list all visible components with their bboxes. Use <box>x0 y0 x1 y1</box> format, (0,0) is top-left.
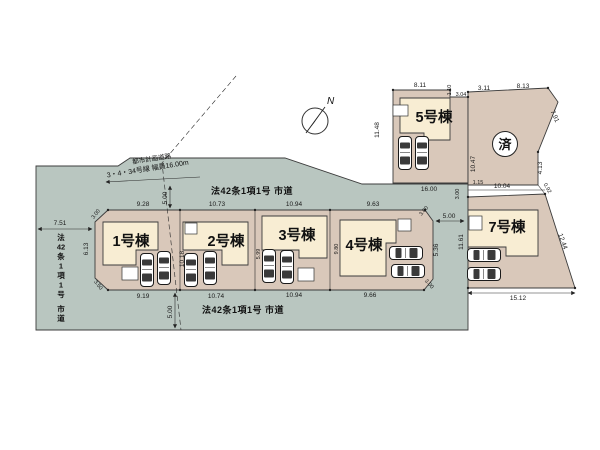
car-icon <box>185 254 198 287</box>
dimension-label: 3.04 <box>456 92 467 98</box>
dimension-label: 11.61 <box>458 234 465 250</box>
boundary-dot <box>547 87 549 89</box>
car-icon <box>263 250 276 283</box>
dimension-label: 15.12 <box>510 295 527 302</box>
boundary-dot <box>107 289 109 291</box>
site-plan-svg: N 法42条1項1号 市道 法42条1項1号 市道 法42条1項1号市道 都市計… <box>0 0 600 450</box>
dimension-label: 10.74 <box>208 293 225 300</box>
boundary-dot <box>179 289 181 291</box>
dimension-label: 10.94 <box>286 292 303 299</box>
bottom-road-label: 法42条1項1号 市道 <box>202 304 284 315</box>
dimension-label: 1.15 <box>473 180 484 186</box>
dimension-label: 11.48 <box>374 122 381 138</box>
dimension-label: 9.63 <box>367 201 380 208</box>
dimension-label: 10.73 <box>209 201 226 208</box>
dimension-label: 4.13 <box>537 161 544 174</box>
dimension-label: 16.00 <box>421 186 438 193</box>
dimension-label: 9.19 <box>137 293 150 300</box>
car-icon <box>468 249 501 262</box>
car-icon <box>392 265 425 278</box>
car-icon <box>468 268 501 281</box>
compass-north-label: N <box>327 96 335 107</box>
entrance-rect <box>393 105 408 116</box>
dimension-label: 5.00 <box>443 213 456 220</box>
dimension-label: 8.11 <box>414 82 427 89</box>
left-road-label: 法42条1項1号市道 <box>56 232 65 323</box>
entrance-rect <box>122 267 138 280</box>
car-icon <box>390 247 423 260</box>
boundary-dot <box>574 287 576 289</box>
lot-1-label: 1号棟 <box>112 232 150 250</box>
boundary-dot <box>467 96 469 98</box>
dimension-label: 1.10 <box>447 85 453 96</box>
car-icon <box>141 254 154 287</box>
car-icon <box>281 251 294 284</box>
dimension-label: 7.51 <box>54 220 67 227</box>
dimension-label: 10.18 <box>179 250 186 267</box>
dimension-label: 0.92 <box>542 182 553 194</box>
dimension-label: 9.66 <box>364 292 377 299</box>
sold-badge-label: 済 <box>498 137 512 152</box>
entrance-rect <box>298 268 314 281</box>
dimension-label: 9.28 <box>137 201 150 208</box>
dimension-label: 3.11 <box>478 85 491 92</box>
dimension-label: 5.36 <box>433 243 440 256</box>
boundary-dot <box>467 196 469 198</box>
top-road-label: 法42条1項1号 市道 <box>211 185 293 196</box>
boundary-dot <box>467 91 469 93</box>
car-icon <box>158 252 171 285</box>
boundary-dot <box>254 209 256 211</box>
boundary-dot <box>329 209 331 211</box>
dimension-label: 9.80 <box>334 244 340 255</box>
entrance-rect <box>398 219 411 231</box>
compass: N <box>302 96 335 134</box>
lot-3-label: 3号棟 <box>278 226 316 244</box>
boundary-dot <box>179 209 181 211</box>
boundary-dot <box>544 193 546 195</box>
entrance-rect <box>185 223 197 234</box>
site-plan-page: N 法42条1項1号 市道 法42条1項1号 市道 法42条1項1号市道 都市計… <box>0 0 600 450</box>
dimension-label: 10.04 <box>494 183 511 190</box>
dimension-label: 3.00 <box>455 189 461 200</box>
boundary-dot <box>254 289 256 291</box>
dimension-label: 5.00 <box>167 305 174 318</box>
dimension-label: 8.13 <box>517 83 530 90</box>
lot-7-label: 7号棟 <box>488 218 526 236</box>
dimension-label: 10.47 <box>470 155 477 172</box>
car-icon <box>399 137 412 170</box>
dimension-label: 6.13 <box>83 242 90 255</box>
boundary-dot <box>329 289 331 291</box>
sold-badge: 済 <box>493 132 518 157</box>
boundary-dot <box>467 287 469 289</box>
entrance-rect <box>469 216 482 230</box>
boundary-dot <box>537 151 539 153</box>
car-icon <box>416 137 429 170</box>
dimension-label: 5.00 <box>162 191 169 204</box>
lot-2-label: 2号棟 <box>207 232 245 250</box>
dimension-label: 10.94 <box>286 201 303 208</box>
car-icon <box>204 252 217 285</box>
lot-4-label: 4号棟 <box>345 236 383 254</box>
lot-5-label: 5号棟 <box>415 108 453 126</box>
boundary-dot <box>423 289 425 291</box>
dimension-label: 5.99 <box>256 249 262 260</box>
boundary-dot <box>392 89 394 91</box>
boundary-dot <box>107 209 109 211</box>
